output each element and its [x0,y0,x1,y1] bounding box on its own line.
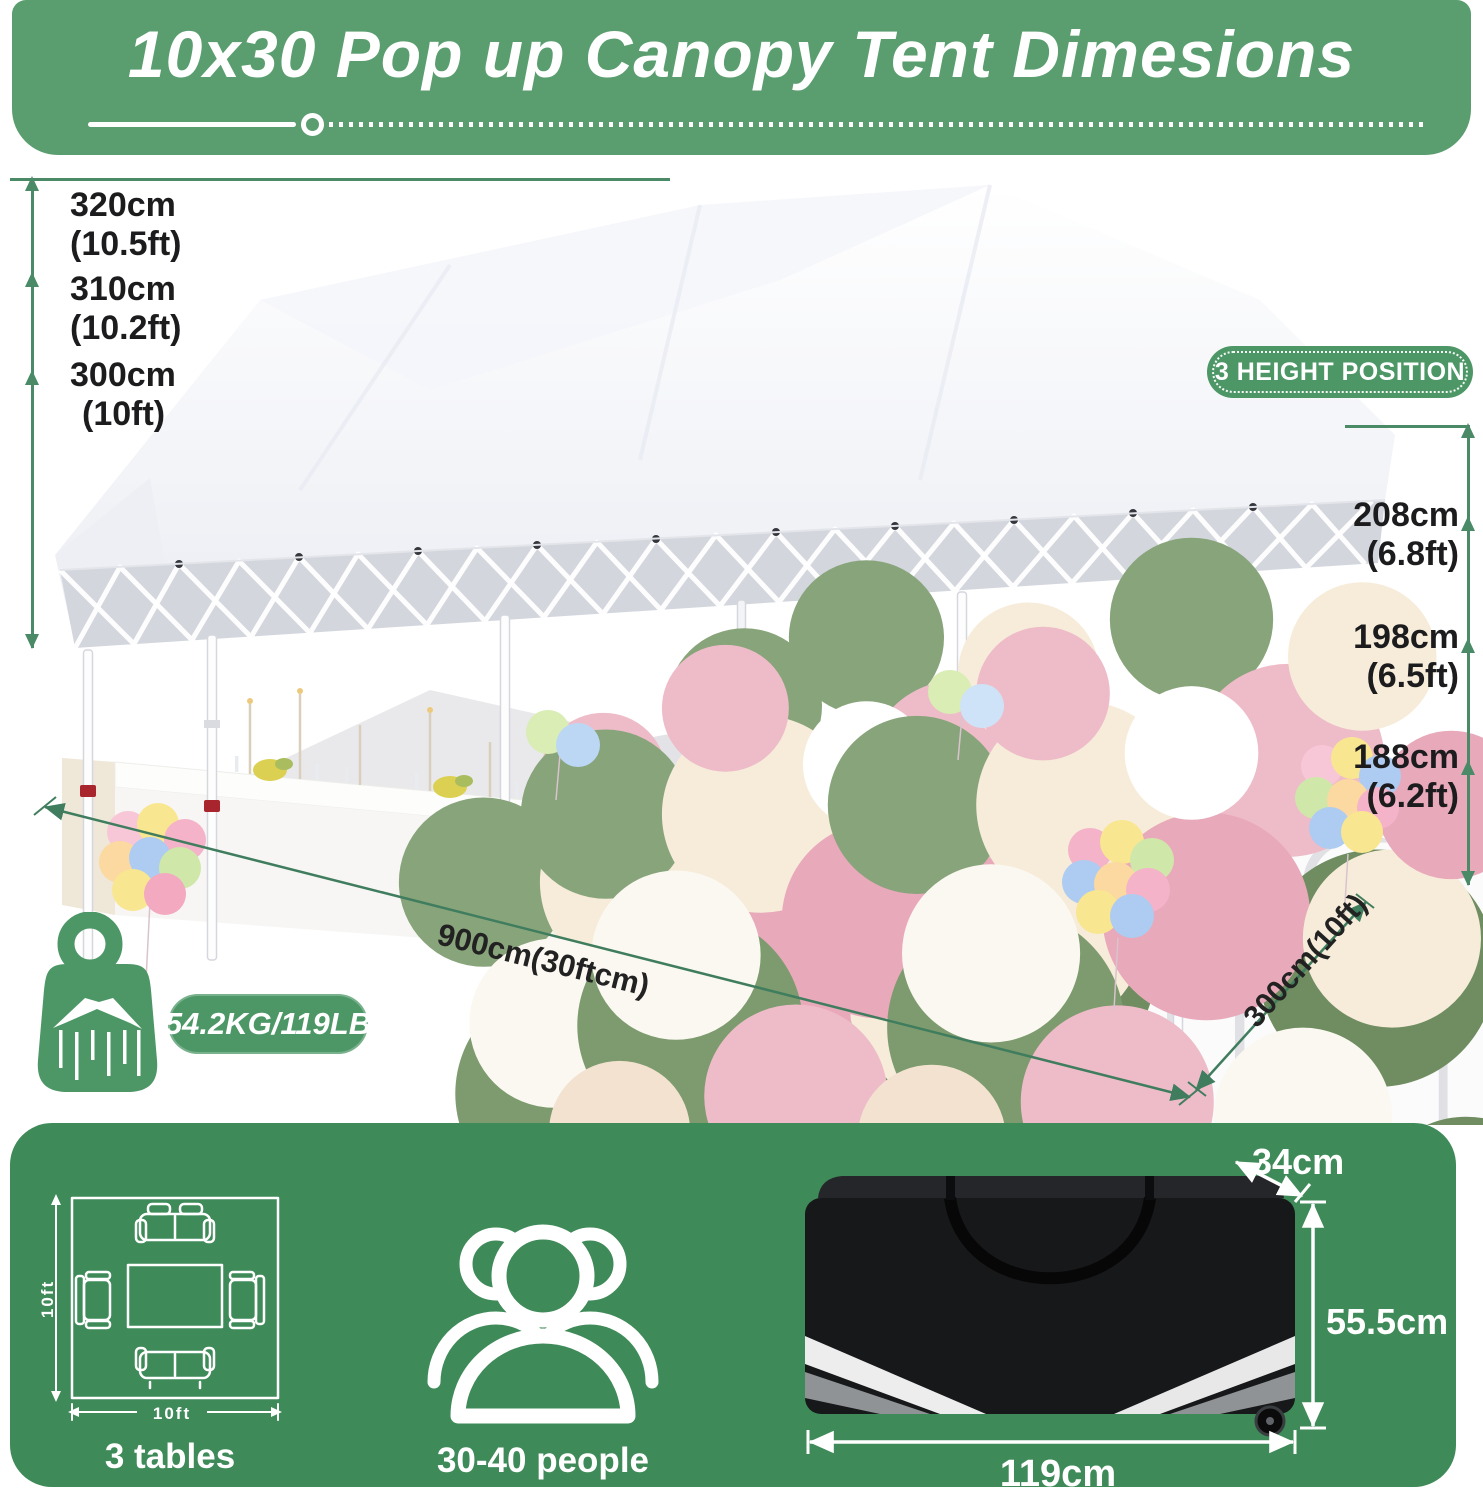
weight-badge: 54.2KG/119LB [168,994,368,1054]
pole-height-label-208: 208cm (6.8ft) [1353,496,1459,574]
page-title: 10x30 Pop up Canopy Tent Dimesions [12,16,1471,92]
arrow-down-icon [1461,871,1475,886]
height-unit: (6.8ft) [1353,535,1459,574]
height-unit: (6.5ft) [1353,657,1459,696]
pole-height-label-198: 198cm (6.5ft) [1353,618,1459,696]
height-value: 320cm [70,186,176,224]
height-label-310: 310cm (10.2ft) [70,270,181,348]
people-caption: 30-40 people [415,1441,671,1481]
carry-bag-graphic [790,1140,1350,1470]
height-value: 208cm [1353,496,1459,534]
height-unit: (6.2ft) [1353,777,1459,816]
right-reference-line [1345,425,1470,428]
tent-weight-icon [35,912,160,1097]
arrow-up-icon [25,272,39,287]
pole-height-label-188: 188cm (6.2ft) [1353,738,1459,816]
bag-height-label: 55.5cm [1326,1301,1448,1343]
arrow-up-icon [25,370,39,385]
height-value: 310cm [70,270,176,308]
bag-length-label: 119cm [978,1453,1138,1496]
dotted-divider-line [88,112,1429,136]
diagram-side-dimension: 10ft [38,1264,60,1334]
height-value: 188cm [1353,738,1459,776]
arrow-up-icon [1461,516,1475,531]
left-vertical-dimension-line [31,178,34,648]
arrow-up-icon [1461,760,1475,775]
height-value: 300cm [70,356,176,394]
divider-dotted-segment [329,122,1429,127]
height-unit: (10.5ft) [70,225,181,264]
arrow-up-icon [1461,423,1475,438]
top-reference-line [10,178,670,181]
diagram-bottom-dimension: 10ft [137,1401,207,1427]
infographic-canvas: 10x30 Pop up Canopy Tent Dimesions [0,0,1483,1500]
height-position-label: 3 HEIGHT POSITION [1212,351,1468,393]
height-label-300: 300cm (10ft) [70,356,176,434]
arrow-up-icon [1461,638,1475,653]
arrow-down-icon [25,634,39,649]
header-banner: 10x30 Pop up Canopy Tent Dimesions [12,0,1471,155]
tables-caption: 3 tables [85,1437,255,1477]
height-unit: (10.2ft) [70,309,181,348]
divider-circle-icon [301,113,324,136]
arrow-up-icon [25,176,39,191]
height-position-badge: 3 HEIGHT POSITION [1207,346,1473,398]
tent-scene [0,160,1483,1125]
people-group-icon [418,1198,668,1428]
bag-depth-label: 34cm [1252,1141,1344,1183]
height-label-320: 320cm (10.5ft) [70,186,181,264]
height-value: 198cm [1353,618,1459,656]
right-vertical-dimension-line [1467,425,1470,885]
table-layout-icon [40,1180,300,1430]
divider-solid-segment [88,122,296,127]
height-unit: (10ft) [70,395,176,434]
